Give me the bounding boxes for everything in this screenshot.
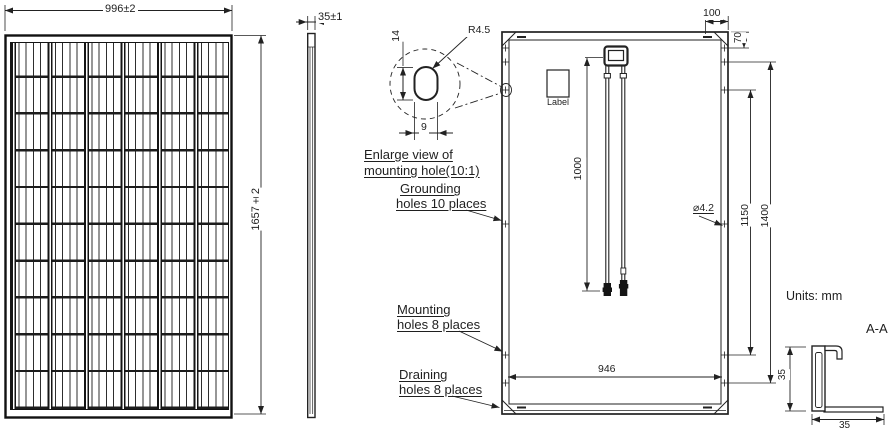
side-thickness-dimension: 35±1 [316, 11, 344, 23]
section-height-dimension: 35 [775, 369, 790, 380]
junction-box [605, 47, 628, 66]
section-label: A-A [866, 322, 888, 336]
section-view-aa [785, 346, 884, 425]
label-outline [547, 70, 569, 97]
inner-hole-spacing-dimension: 1150 [738, 204, 754, 227]
units-note: Units: mm [786, 290, 842, 304]
hole-diameter-dimension: ⌀4.2 [691, 203, 716, 215]
enlarged-mounting-hole-view [390, 30, 512, 140]
solar-panel-technical-drawing: 996±2 1657±2 35±1 14 R4.5 9 Enlarge view… [0, 0, 893, 436]
output-cables [606, 66, 625, 284]
draining-holes-callout-line2: holes 8 places [399, 383, 482, 397]
draining-holes-callout-line1: Draining [399, 368, 447, 382]
corner-hole-offset-dimension: 100 [701, 8, 723, 20]
frame-hook-profile [825, 346, 842, 359]
grounding-holes-callout-line2: holes 10 places [396, 197, 486, 211]
mounting-hole-slot [415, 67, 438, 100]
slot-length-dimension: 14 [389, 30, 405, 42]
side-view [296, 16, 341, 418]
front-height-dimension: 1657±2 [248, 188, 264, 231]
mounting-holes-callout-line1: Mounting [397, 303, 450, 317]
width-hole-spacing-dimension: 946 [596, 364, 618, 376]
enlarged-view-caption-line2: mounting hole(10:1) [364, 164, 480, 178]
mounting-holes-callout-line2: holes 8 places [397, 318, 480, 332]
frame-holes [502, 45, 728, 387]
slot-width-dimension: 9 [419, 122, 429, 134]
section-width-dimension: 35 [837, 420, 852, 431]
slot-radius-dimension: R4.5 [466, 25, 492, 37]
back-view [502, 16, 776, 414]
cable-connectors [603, 280, 629, 296]
front-width-dimension: 996±2 [103, 3, 138, 15]
cable-length-dimension: 1000 [571, 157, 587, 180]
callout-leaders [452, 210, 503, 408]
front-view [5, 5, 266, 418]
grounding-holes-callout-line1: Grounding [400, 182, 461, 196]
outer-hole-spacing-dimension: 1400 [758, 204, 774, 227]
drain-slot-marks [517, 37, 712, 408]
enlarged-view-caption-line1: Enlarge view of [364, 148, 453, 162]
edge-hole-offset-dimension: 70 [731, 32, 746, 43]
junction-label-text: Label [543, 98, 573, 108]
